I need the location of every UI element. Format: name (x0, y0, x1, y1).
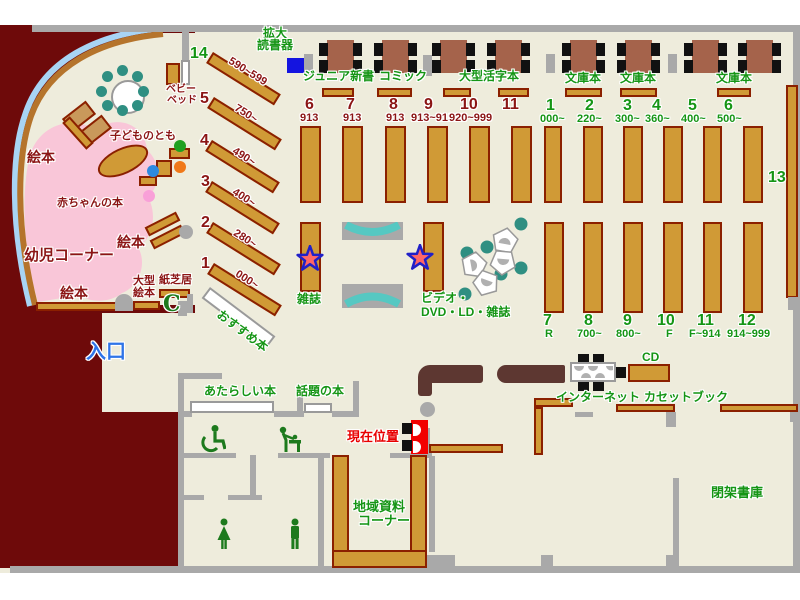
bookshelf (623, 126, 643, 203)
wall-closed-stacks (673, 478, 679, 567)
bookshelf (544, 126, 562, 203)
chair (319, 43, 328, 56)
internet-terminals (570, 362, 616, 382)
chair (521, 43, 530, 56)
magnifier-label-2: 読書器 (257, 39, 293, 52)
bookshelf (300, 126, 321, 203)
bookshelf (703, 222, 722, 313)
bookshelf (583, 126, 603, 203)
shelf-code: 360~ (645, 114, 670, 126)
bunko-label: 文庫本 (565, 72, 601, 85)
chair (132, 100, 143, 111)
chair (684, 60, 693, 73)
shelf-number: 1 (201, 256, 210, 273)
chair (562, 43, 571, 56)
wall-segment (178, 373, 222, 379)
bookshelf (429, 444, 503, 453)
bookshelf (720, 404, 798, 412)
shelf-number: 4 (200, 133, 209, 150)
shelf-code: F~914 (689, 329, 721, 341)
shelf-code: 300~ (615, 114, 640, 126)
chair (651, 43, 660, 56)
local-materials-shelf (332, 550, 427, 568)
bookshelf (583, 222, 603, 313)
pillar (420, 402, 435, 417)
wheelchair-icon (196, 424, 226, 454)
new-books-shelf (190, 401, 274, 413)
shelf-number: 5 (200, 91, 209, 108)
bench (342, 284, 403, 308)
new-books-label: あたらしい本 (204, 385, 276, 398)
chair (96, 86, 107, 97)
av-label-1: ビデオ・ (421, 292, 469, 305)
bookshelf (511, 126, 532, 203)
wall-segment (250, 455, 256, 499)
local-materials-label-1: 地域資料 (353, 500, 405, 514)
star-marker (296, 245, 324, 273)
bunko-label: 文庫本 (716, 72, 752, 85)
man-icon (286, 518, 304, 550)
bookshelf (534, 407, 543, 455)
display-shelf (620, 88, 657, 97)
baby-bed-shelf (166, 63, 180, 85)
bunko-label: 文庫本 (620, 72, 656, 85)
phone-icon: C (163, 293, 181, 316)
baby-bed-label-1: ベビー (166, 85, 196, 96)
shelf-code: 800~ (616, 329, 641, 341)
shelf-number: 11 (502, 97, 519, 114)
chair (402, 423, 412, 434)
kodomo-label: 子どものとも (110, 131, 176, 143)
infant-corner-label: 幼児コーナー (24, 248, 114, 264)
wall-children-entry (182, 25, 189, 61)
pillar (115, 294, 133, 311)
pillar (666, 412, 676, 427)
pillar (790, 412, 800, 422)
bookshelf (342, 126, 363, 203)
shelf-code: 700~ (577, 329, 602, 341)
shelf-code: 400~ (681, 114, 706, 126)
wall-segment (429, 456, 435, 552)
wall-segment (178, 495, 204, 500)
wall-segment (332, 411, 354, 417)
shelf-code: 913~919 (411, 113, 454, 125)
local-materials-label-2: コーナー (358, 514, 410, 528)
chair (596, 43, 605, 56)
outside-area-below-entrance (102, 412, 178, 568)
chair (374, 43, 383, 56)
reading-table (746, 40, 773, 73)
bookshelf (544, 222, 564, 313)
wall-segment (318, 455, 324, 566)
baby-bed (181, 60, 190, 85)
chair (718, 43, 727, 56)
display-shelf (565, 88, 602, 97)
display-shelf (717, 88, 751, 97)
kamishibai-label: 紙芝居 (159, 275, 192, 287)
shelf-number: 2 (201, 215, 210, 232)
chair (684, 43, 693, 56)
reading-table (625, 40, 652, 73)
partition (668, 54, 677, 73)
chair (408, 43, 417, 56)
chair (772, 60, 781, 73)
shelf-code: R (545, 329, 553, 341)
star-marker (406, 244, 434, 272)
stool-blue (147, 165, 159, 177)
baby-books-label: 赤ちゃんの本 (57, 198, 123, 210)
bookshelf (663, 126, 683, 203)
shelf-number-13: 13 (768, 170, 786, 187)
stool-pink (143, 190, 155, 202)
picture-book-label: 絵本 (60, 286, 88, 301)
pillar (788, 297, 800, 310)
shelf-number: 14 (190, 46, 208, 63)
cassette-label: カセットブック (644, 391, 728, 404)
chair (432, 60, 441, 73)
entrance-label: 入口 (86, 342, 126, 363)
reading-table (692, 40, 719, 73)
picture-book-label: 絵本 (27, 150, 55, 165)
shelf-code: 913 (343, 113, 361, 125)
shelf-code: 914~999 (727, 329, 770, 341)
chair (353, 43, 362, 56)
chair (132, 71, 143, 82)
bookshelf (743, 126, 763, 203)
bookshelf (469, 126, 490, 203)
chair (466, 43, 475, 56)
bookshelf (743, 222, 763, 313)
chair (738, 43, 747, 56)
current-position-label: 現在位置 (347, 430, 399, 444)
chair (138, 86, 149, 97)
chair (102, 100, 113, 111)
shelf-code: 000~ (540, 114, 565, 126)
bookshelf-13 (786, 85, 798, 298)
bookshelf (623, 222, 643, 313)
comic-label: コミック (379, 70, 427, 83)
wall-segment (353, 381, 359, 417)
magnifying-reader (287, 58, 304, 73)
chair (772, 43, 781, 56)
bench (342, 222, 403, 240)
av-label-2: DVD・LD・雑誌 (421, 306, 510, 319)
chair (432, 43, 441, 56)
large-picture-book-label-2: 絵本 (133, 288, 155, 300)
chair (616, 367, 626, 378)
large-picture-book-label-1: 大型 (133, 276, 155, 288)
chair (117, 65, 128, 76)
junior-label: ジュニア新書 (303, 70, 374, 83)
current-position-marker (411, 420, 428, 454)
service-counter (418, 378, 432, 396)
shelf-code: 913 (386, 113, 404, 125)
chair (617, 43, 626, 56)
closed-stacks-label: 閉架書庫 (711, 486, 763, 500)
pillar (179, 225, 193, 239)
bookshelf (663, 222, 683, 313)
cassette-shelf (616, 404, 675, 412)
wall-segment (178, 373, 184, 568)
topical-books-shelf (304, 403, 332, 413)
pillar (666, 555, 678, 566)
service-counter (497, 365, 565, 383)
chair (102, 71, 113, 82)
chair (487, 43, 496, 56)
wall-segment (575, 412, 593, 417)
cd-label: CD (642, 351, 659, 364)
wall-top (32, 25, 793, 32)
chair (521, 60, 530, 73)
chair (117, 105, 128, 116)
shelf-code: 220~ (577, 114, 602, 126)
bookshelf (385, 126, 406, 203)
chair (402, 440, 412, 451)
pillar (541, 555, 553, 566)
bookshelf (703, 126, 722, 203)
picture-book-label: 絵本 (117, 235, 145, 250)
step-shelf (139, 176, 157, 186)
baby-bed-label-2: ベッド (167, 96, 197, 107)
large-picture-book-shelf (133, 301, 160, 310)
cd-shelf (628, 364, 670, 382)
shelf-code: 913 (300, 113, 318, 125)
library-floor-map: C 14 5 4 3 2 1 590~599 750~ 490~ 400~ 28… (0, 0, 800, 600)
wall-segment (187, 294, 193, 313)
shelf-code: F (666, 329, 673, 341)
wall-segment (228, 495, 262, 500)
bookshelf (427, 126, 448, 203)
stool-orange (174, 161, 186, 173)
reading-table (570, 40, 597, 73)
topical-books-label: 話題の本 (296, 385, 344, 398)
shelf-number: 3 (201, 174, 210, 191)
shelf-code: 920~999 (449, 113, 492, 125)
pillar (427, 555, 455, 567)
internet-label: インターネット (556, 391, 640, 404)
large-print-label: 大型活字本 (459, 70, 519, 83)
shelf-code: 500~ (717, 114, 742, 126)
baby-change-icon (276, 426, 302, 454)
magazine-label: 雑誌 (297, 293, 321, 306)
partition (546, 54, 555, 73)
woman-icon (215, 518, 233, 550)
picture-book-shelf (36, 302, 117, 311)
